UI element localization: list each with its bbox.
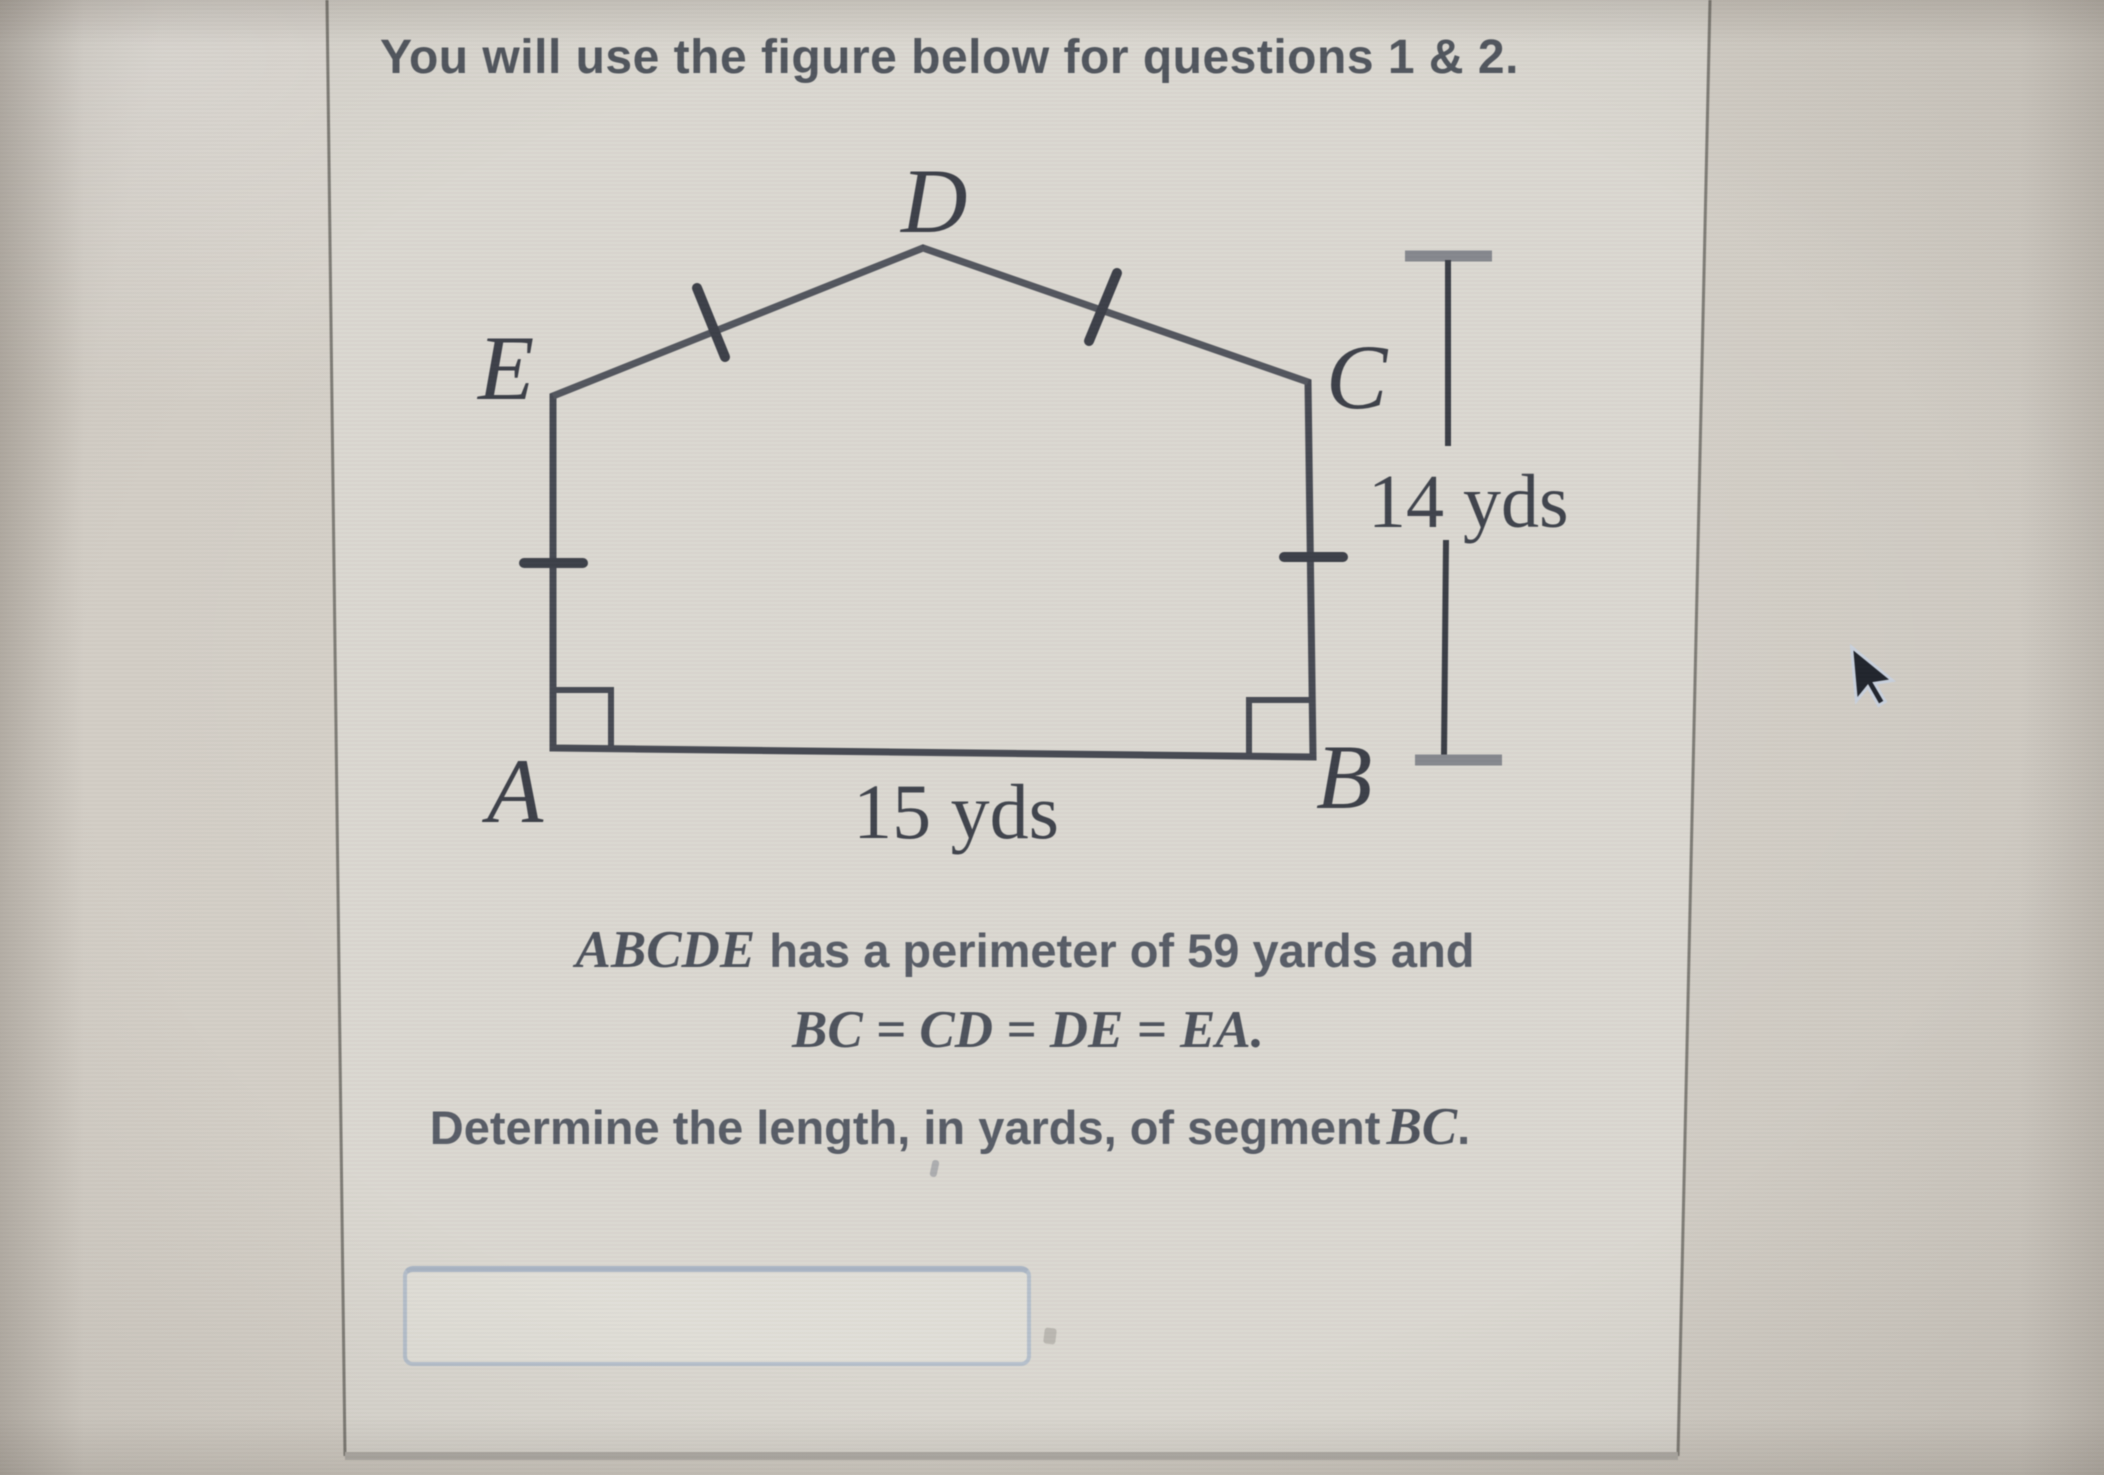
statement-line-2-math: BC = CD = DE = EA. [792, 1001, 1264, 1059]
statement-line-2: BC = CD = DE = EA. [633, 1000, 1423, 1061]
statement-line-1-math: ABCDE [576, 921, 756, 979]
statement-line-1-text: has a perimeter of 59 yards and [769, 924, 1474, 977]
height-label: 14 yds [1368, 460, 1569, 544]
question-instructions: You will use the figure below for questi… [380, 30, 1580, 85]
question-panel [327, 0, 1710, 1456]
question-line-punct: . [1457, 1101, 1470, 1154]
mouse-cursor-icon [1850, 644, 1910, 719]
measure-bar-lower-line [1444, 540, 1446, 757]
question-line: Determine the length, in yards, of segme… [345, 1097, 1555, 1158]
base-length-label: 15 yds [853, 768, 1059, 855]
vertex-label-b: B [1316, 726, 1372, 828]
vertex-label-a: A [481, 740, 544, 842]
vertex-label-c: C [1326, 326, 1389, 428]
vertex-label-d: D [899, 150, 967, 252]
pentagon-figure: A B C D E 15 yds 14 yds [0, 0, 2104, 1475]
vertex-label-e: E [476, 317, 534, 419]
photographed-screen: A B C D E 15 yds 14 yds You will use the… [0, 0, 2104, 1475]
input-handle-mark [1043, 1327, 1057, 1344]
statement-line-1: ABCDEhas a perimeter of 59 yards and [480, 920, 1570, 981]
question-line-text: Determine the length, in yards, of segme… [430, 1101, 1381, 1154]
answer-input[interactable] [403, 1266, 1031, 1366]
question-line-math: BC [1386, 1098, 1457, 1156]
